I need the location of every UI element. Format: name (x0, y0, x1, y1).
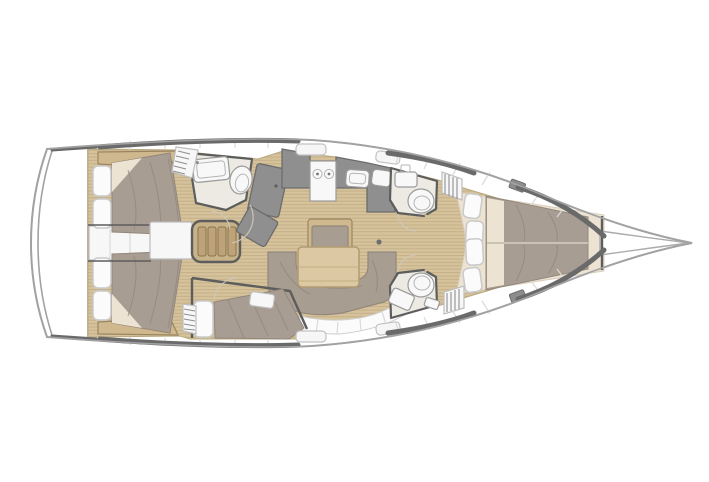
mast-post-icon (376, 239, 381, 244)
pillow (93, 291, 111, 320)
seat-cushion (462, 193, 482, 219)
pillow (93, 166, 111, 196)
second-basin (371, 169, 392, 187)
pillow (93, 258, 111, 288)
head-aft-port (188, 153, 255, 210)
floorplan-canvas (0, 0, 709, 482)
companionway (150, 221, 240, 262)
pillow (194, 301, 213, 337)
seat-cushion (465, 239, 483, 266)
seat-cushion (462, 267, 482, 293)
stove (310, 161, 336, 201)
coachroof-hatch (296, 144, 326, 155)
coachroof-hatch (296, 331, 326, 342)
sink (192, 156, 230, 183)
yacht-floorplan (0, 0, 709, 482)
pillow (93, 199, 111, 228)
aft-cabin-starboard (88, 251, 183, 335)
seat-locker (249, 291, 275, 308)
burner-center (328, 173, 331, 176)
burner-center (316, 173, 319, 176)
latch-icon (274, 184, 277, 187)
engine-box (150, 222, 192, 259)
sink (395, 172, 417, 187)
locker-mid-starboard (183, 304, 196, 334)
